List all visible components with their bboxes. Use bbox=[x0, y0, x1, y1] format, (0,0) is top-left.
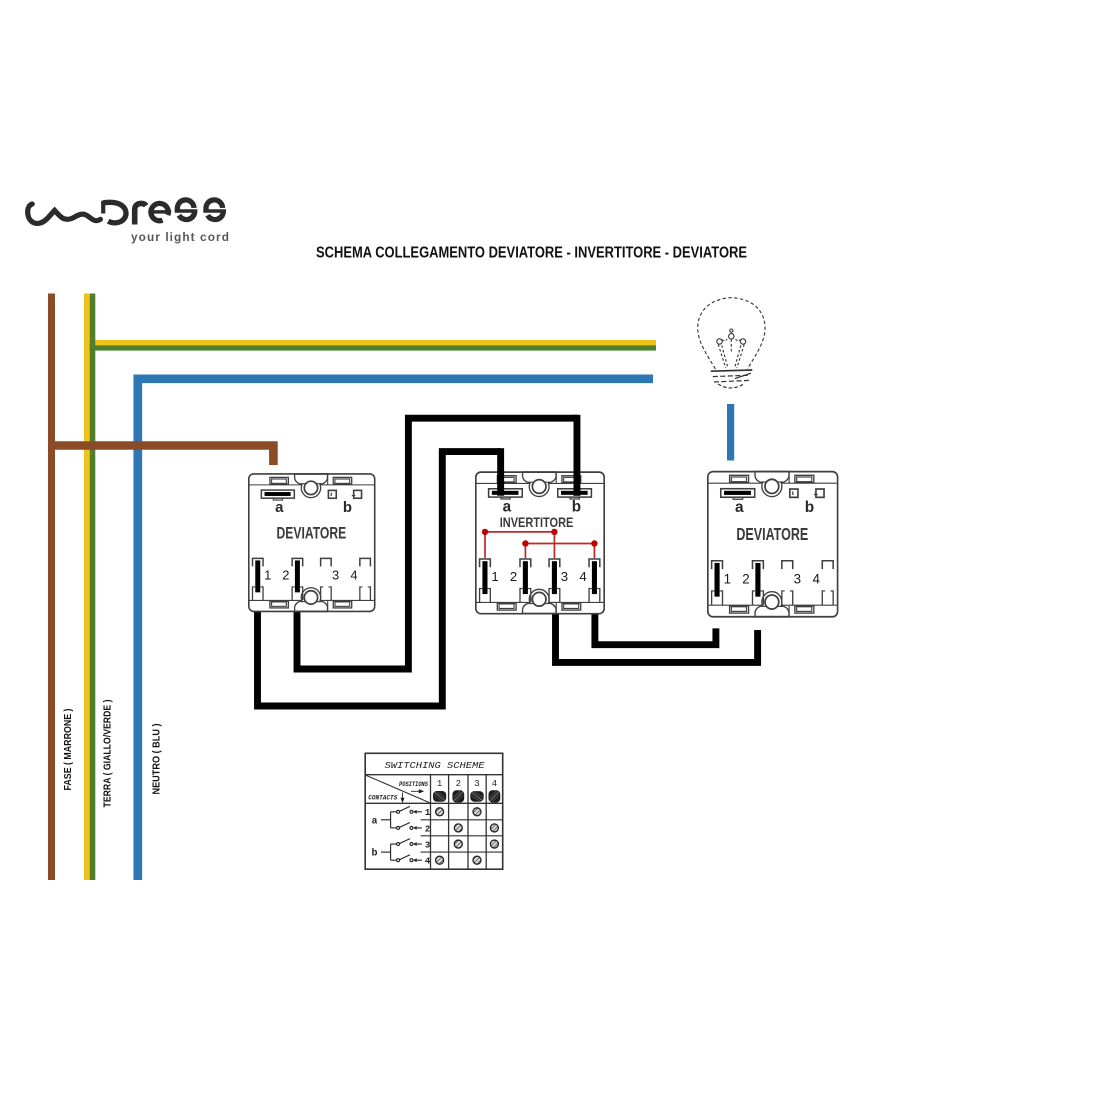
svg-text:2: 2 bbox=[456, 779, 461, 789]
svg-text:4: 4 bbox=[579, 569, 586, 584]
svg-text:NEUTRO ( BLU ): NEUTRO ( BLU ) bbox=[151, 724, 163, 795]
svg-text:4: 4 bbox=[425, 857, 431, 867]
svg-text:4: 4 bbox=[350, 568, 357, 583]
svg-text:1: 1 bbox=[724, 571, 731, 586]
svg-text:3: 3 bbox=[794, 571, 801, 586]
svg-text:FASE ( MARRONE ): FASE ( MARRONE ) bbox=[62, 709, 74, 791]
svg-text:3: 3 bbox=[425, 840, 430, 850]
svg-text:2: 2 bbox=[282, 568, 289, 583]
svg-text:CONTACTS: CONTACTS bbox=[368, 795, 397, 802]
svg-text:SWITCHING SCHEME: SWITCHING SCHEME bbox=[385, 760, 486, 771]
svg-text:4: 4 bbox=[492, 779, 497, 789]
svg-text:TERRA ( GIALLO/VERDE ): TERRA ( GIALLO/VERDE ) bbox=[102, 700, 114, 808]
svg-text:1: 1 bbox=[491, 569, 498, 584]
svg-text:1: 1 bbox=[425, 808, 431, 818]
svg-text:3: 3 bbox=[561, 569, 568, 584]
svg-text:1: 1 bbox=[437, 779, 442, 789]
svg-text:b: b bbox=[343, 499, 352, 516]
svg-text:a: a bbox=[503, 498, 512, 515]
svg-text:3: 3 bbox=[474, 779, 479, 789]
svg-text:b: b bbox=[372, 848, 378, 860]
svg-text:SCHEMA COLLEGAMENTO DEVIATORE: SCHEMA COLLEGAMENTO DEVIATORE - INVERTIT… bbox=[316, 245, 747, 262]
svg-text:INVERTITORE: INVERTITORE bbox=[500, 514, 574, 530]
svg-text:DEVIATORE: DEVIATORE bbox=[736, 524, 808, 544]
svg-text:2: 2 bbox=[425, 824, 430, 834]
svg-text:a: a bbox=[275, 499, 284, 516]
svg-text:1: 1 bbox=[264, 568, 271, 583]
svg-text:2: 2 bbox=[510, 569, 517, 584]
svg-text:3: 3 bbox=[332, 568, 339, 583]
svg-text:2: 2 bbox=[742, 571, 749, 586]
svg-text:POSITIONS: POSITIONS bbox=[399, 781, 428, 788]
svg-text:4: 4 bbox=[813, 571, 821, 586]
svg-text:a: a bbox=[735, 499, 744, 516]
svg-text:a: a bbox=[372, 816, 378, 827]
svg-text:b: b bbox=[805, 499, 814, 516]
svg-text:your light cord: your light cord bbox=[131, 230, 230, 244]
svg-text:DEVIATORE: DEVIATORE bbox=[276, 525, 346, 543]
svg-text:b: b bbox=[572, 498, 581, 515]
